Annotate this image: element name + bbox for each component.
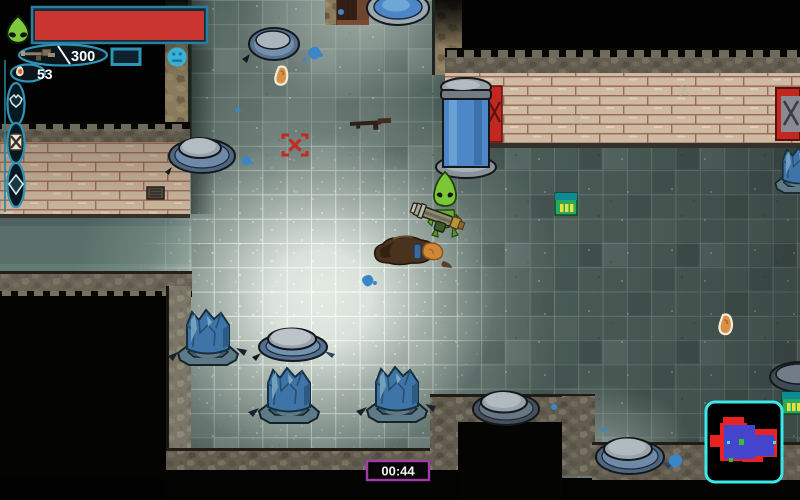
svg-text:53: 53: [37, 66, 53, 82]
svg-text:300: 300: [71, 49, 95, 65]
svg-text:00:44: 00:44: [381, 464, 415, 479]
